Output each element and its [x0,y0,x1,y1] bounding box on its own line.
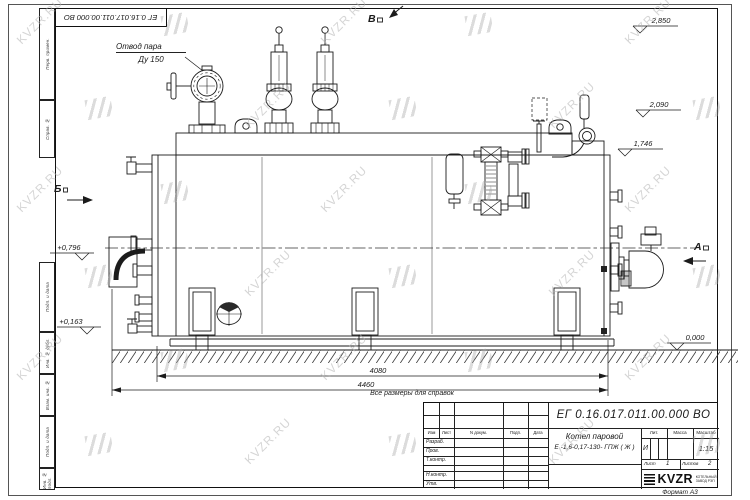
dimension-4080: 4080 [356,366,400,375]
kvzr-logo-text: KVZR [658,472,693,486]
dimension-4460: 4460 [344,380,388,389]
kvzr-logo: KVZR КОТЕЛЬНЫЙ ЗАВОД РЭП [641,469,719,489]
safety-valve-1 [265,27,293,133]
divider [424,465,548,466]
tb-lit-label: Лит. [641,428,667,438]
ground-hatch [112,350,738,363]
boiler-body [105,133,697,336]
tb-sheets-value: 2 [708,459,711,469]
tb-row-prov: Пров. [426,447,439,456]
elevation-2090: 2,090 [639,100,679,109]
manhole [216,302,242,326]
divider [548,464,641,465]
view-label-right: А [694,241,709,253]
divider [424,415,548,416]
view-sheet-ref-box [703,245,709,251]
divider [658,438,659,459]
tb-sheets-label: Листов [682,459,698,469]
kvzr-logo-subtext: КОТЕЛЬНЫЙ ЗАВОД РЭП [696,475,717,483]
tb-col-podp: Подп. [503,428,528,438]
steam-outlet-valve [167,57,225,133]
elevation-2850: 2,850 [641,16,681,25]
tb-col-data: Дата [528,428,548,438]
divider [424,480,548,481]
view-label-top: В [368,13,383,25]
lifting-lugs [235,119,571,134]
skid-rails [170,339,614,346]
divider [650,438,651,459]
tb-mass-label: Масса [667,428,693,438]
tb-col-list: Лист [439,428,454,438]
kvzr-coil-icon [644,473,655,485]
tb-designation: ЕГ 0.16.017.011.00.000 ВО [548,403,719,428]
drawing-sheet: Перв. примен. Справ. № Подп. и дата Инв.… [0,0,750,500]
divider [424,447,548,448]
tb-scale-value: 1:15 [693,438,719,459]
divider [680,459,681,469]
front-nozzles [109,157,152,333]
tb-product-model: Е -1,6-0,17-130- ГПЖ ( Ж ) [548,444,641,451]
title-block: Изм Лист N докум. Подп. Дата Разраб. Про… [423,402,718,488]
format-label: Формат А3 [645,489,715,496]
tb-row-nkontr: Н.контр. [426,471,447,480]
elevation-0000: 0,000 [675,333,715,342]
tb-row-razrab: Разраб. [426,438,444,447]
tb-col-izm: Изм [424,428,439,438]
steam-outlet-dn: Ду 150 [116,55,186,64]
safety-valve-2 [311,27,339,133]
view-sheet-ref-box [63,187,69,193]
tb-sheet-label: Лист [644,459,656,469]
elevation-0796: +0,796 [49,243,89,252]
elevation-0163: +0,163 [51,317,91,326]
water-level-gauges [446,147,529,215]
tb-sheet-value: 1 [666,459,669,469]
view-sheet-ref-box [377,17,383,23]
reference-note: Все размеры для справок [350,390,474,397]
tb-row-utv: Утв. [426,480,437,489]
tb-col-ndokum: N докум. [454,428,503,438]
view-label-left: Б [54,183,68,195]
tb-scale-label: Масштаб [693,428,719,438]
steam-outlet-label: Отвод пара [116,42,186,53]
elevation-marks [50,26,711,350]
tb-product-name: Котел паровой [548,432,641,441]
tb-row-tkontr: Т.контр. [426,456,446,465]
tb-lit-value: И [641,438,650,459]
elevation-1746: 1,746 [623,139,663,148]
support-feet [189,288,580,350]
burner [611,227,664,291]
